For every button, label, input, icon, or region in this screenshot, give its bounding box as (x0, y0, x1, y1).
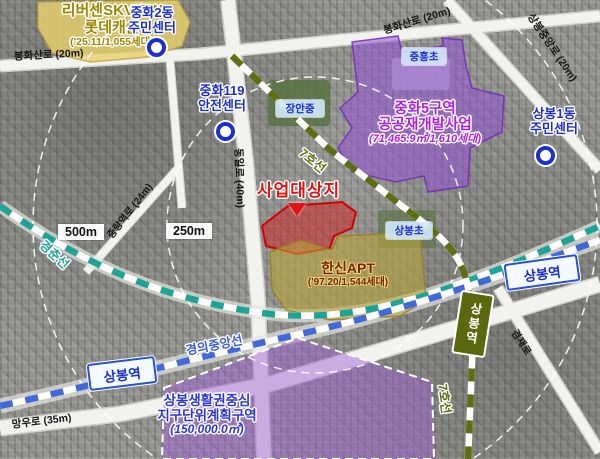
distance-label-250m: 250m (166, 223, 212, 239)
zone-label-sangbong-district: 상봉생활권중심 지구단위계획구역 (150,000.0㎡) (128, 393, 286, 437)
hanshin-detail: ('97.20/1,544세대) (292, 277, 404, 288)
junghwa2-line1: 중화2동 (112, 6, 192, 21)
distance-label-500m: 500m (58, 224, 104, 240)
poi-marker-icon-junghwa2 (147, 38, 166, 57)
poi-label-sangbong1-center: 상봉1동 주민센터 (512, 107, 596, 136)
poi-label-junghwa119: 중화119 안전센터 (180, 84, 264, 113)
poi-marker-icon-junghwa119 (216, 122, 235, 141)
district-name-line2: 지구단위계획구역 (128, 408, 286, 423)
school-label-sangbong: 상봉초 (386, 222, 432, 239)
road-gyeomjae (498, 288, 600, 452)
school-label-jangan: 장안중 (276, 100, 324, 117)
poi-label-junghwa2-center: 중화2동 주민센터 (112, 6, 192, 35)
riversen-detail: ('25.11/1,055세대) (34, 37, 190, 49)
junghwa5-name-line2: 공공재개발사업 (350, 117, 500, 133)
poi-marker-icon-sangbong1 (536, 146, 555, 165)
map-canvas: 리버센SKVIEW 롯데캐슬 ('25.11/1,055세대) 중화2동 주민센… (0, 0, 600, 459)
site-pointer-icon (288, 203, 306, 216)
station-sangbong-east-label: 상봉역 (522, 260, 562, 285)
road-jungnang-yeokro (86, 166, 180, 272)
district-name-line1: 상봉생활권중심 (128, 393, 286, 408)
sangbong1-line2: 주민센터 (512, 122, 596, 137)
junghwa119-line2: 안전센터 (180, 99, 264, 114)
station-sangbong-line7-label: 상봉역 (460, 301, 486, 347)
zone-label-junghwa5: 중화5구역 공공재개발사업 (71,465.9㎡/1,610세대) (350, 101, 500, 146)
sangbong1-line1: 상봉1동 (512, 107, 596, 122)
station-sangbong-west-label: 상봉역 (102, 361, 141, 385)
junghwa119-line1: 중화119 (180, 84, 264, 99)
project-site-label: 사업대상지 (257, 181, 340, 200)
district-detail: (150,000.0㎡) (128, 423, 286, 436)
junghwa2-line2: 주민센터 (112, 21, 192, 36)
junghwa5-name-line1: 중화5구역 (350, 101, 500, 117)
hanshin-name: 한신APT (292, 261, 404, 277)
zone-label-hanshin: 한신APT ('97.20/1,544세대) (292, 261, 404, 288)
school-label-jungheung: 중흥초 (402, 48, 446, 65)
junghwa5-detail: (71,465.9㎡/1,610세대) (350, 133, 500, 145)
road-label-dongil: 동일로 (40m) (231, 148, 245, 208)
